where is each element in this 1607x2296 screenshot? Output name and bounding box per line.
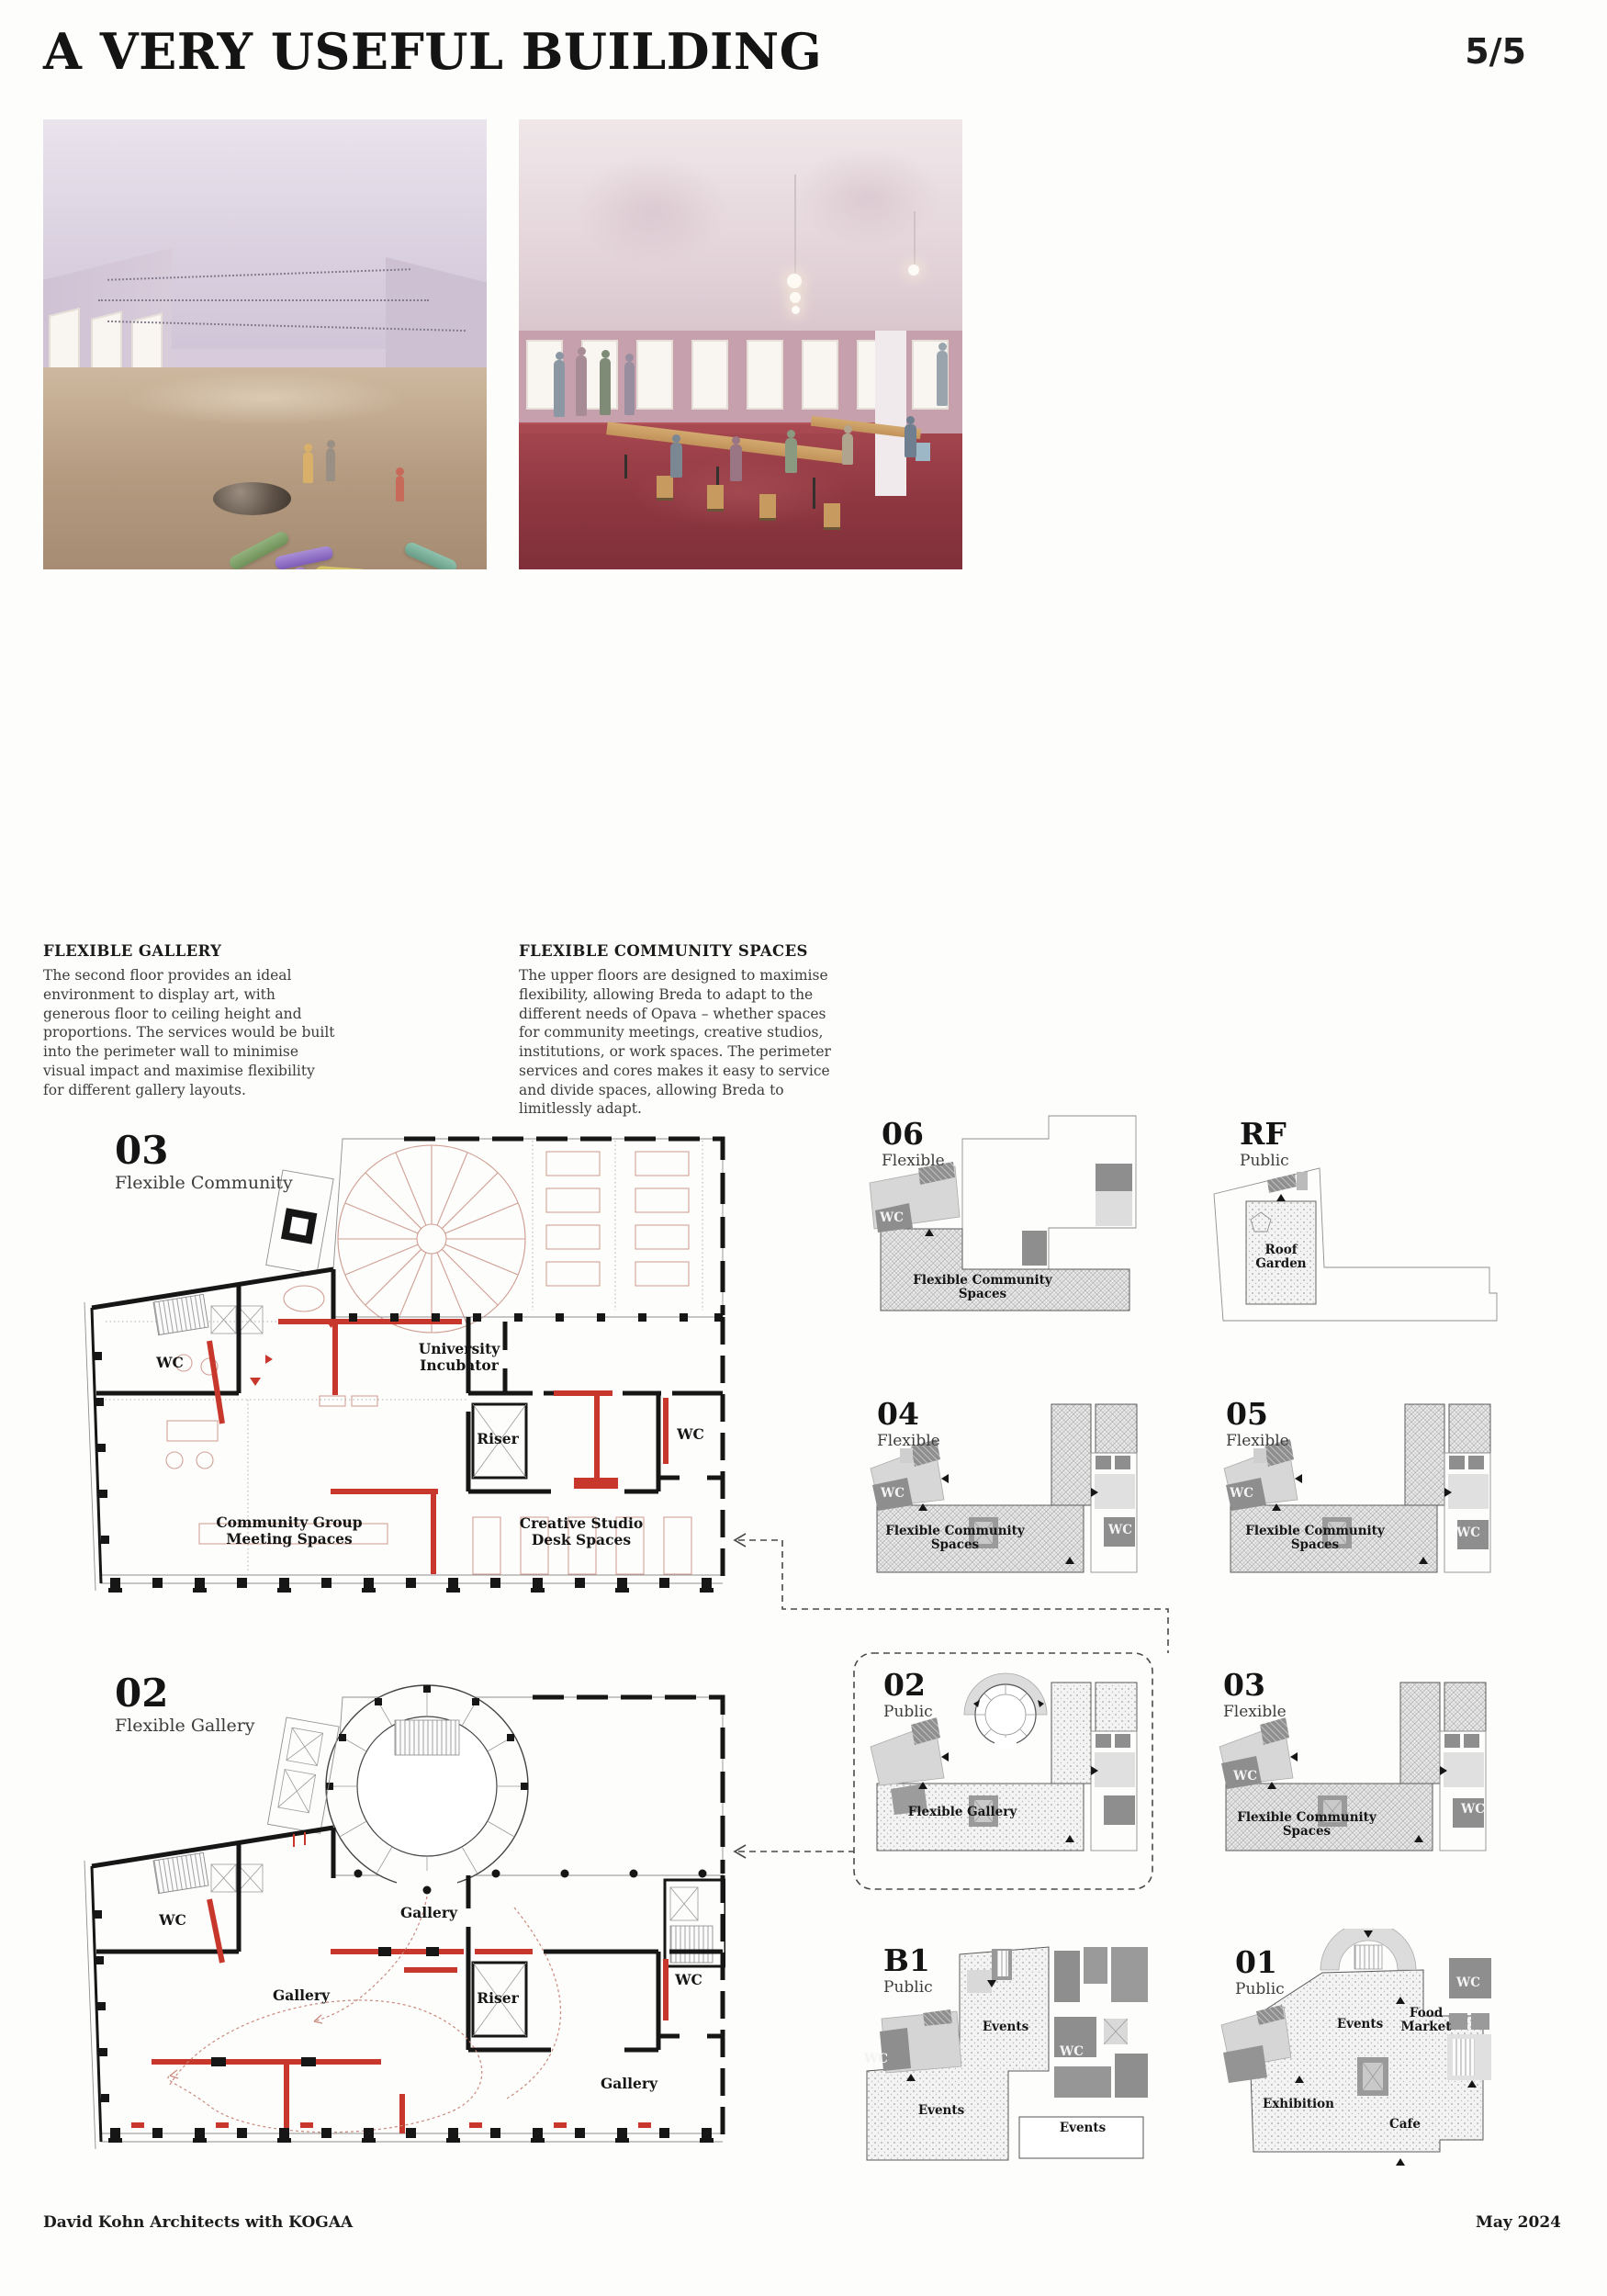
- floor-plan-06-small: 06 Flexible WC Flexible Community Spaces: [863, 1111, 1148, 1322]
- plan-number: B1: [883, 1945, 933, 1975]
- room-label-gallery: Gallery: [583, 2076, 675, 2092]
- person-figure: [554, 360, 565, 417]
- render-flexible-gallery: [43, 119, 487, 569]
- stair: [153, 1294, 208, 1334]
- stair: [153, 1852, 208, 1893]
- plan-name: Public: [883, 1703, 933, 1721]
- room-label-area: Flexible Community Spaces: [868, 1525, 1042, 1552]
- room-label-wc: WC: [858, 2053, 894, 2066]
- floor-plan-03-large: 03 Flexible Community: [73, 1131, 725, 1609]
- floor-plan-rf-small: RF Public Roof Garden: [1212, 1111, 1506, 1327]
- floor-plan-05-small: 05 Flexible WC WC Flexible Community Spa…: [1212, 1391, 1506, 1584]
- floor-plan-02-large: 02 Flexible Gallery: [73, 1667, 725, 2167]
- room-label-area: Flexible Gallery: [889, 1806, 1036, 1819]
- plan-name: Flexible: [882, 1152, 945, 1170]
- visitor-path: [168, 1896, 561, 2133]
- plan-name: Flexible Community: [115, 1173, 293, 1193]
- plan-number: 05: [1226, 1399, 1289, 1429]
- room-label-studio: Creative Studio Desk Spaces: [512, 1515, 650, 1548]
- render-flexible-community: [519, 119, 962, 569]
- room-label-wc: WC: [661, 1972, 716, 1988]
- floor-plan-b1-small: B1 Public Events Events Events WC: [854, 1929, 1152, 2177]
- plan-name: Flexible: [877, 1432, 940, 1450]
- room-label-wc: WC: [145, 1912, 200, 1929]
- plan-number: 01: [1235, 1947, 1285, 1977]
- room-label-wc: WC: [1450, 1803, 1496, 1817]
- room-label-wc: WC: [133, 1355, 207, 1371]
- room-label-area: Roof Garden: [1247, 1244, 1315, 1271]
- plan-name: Public: [1235, 1980, 1285, 1998]
- room-label-wc: WC: [1222, 1770, 1268, 1784]
- room-label-exhibition: Exhibition: [1253, 2098, 1344, 2111]
- caption-heading: FLEXIBLE GALLERY: [43, 942, 357, 960]
- plan-number: 02: [115, 1674, 255, 1713]
- caption-body: The second floor provides an ideal envir…: [43, 966, 335, 1099]
- movable-partitions: [152, 1899, 666, 2133]
- room-label-cafe: Cafe: [1377, 2118, 1433, 2132]
- plan-name: Flexible: [1226, 1432, 1289, 1450]
- room-label-events: Events: [960, 2020, 1051, 2034]
- page-title: A VERY USEFUL BUILDING: [43, 22, 822, 81]
- plan-name: Public: [1240, 1152, 1289, 1170]
- white-pillar: [875, 331, 906, 496]
- room-label-wc: WC: [1445, 1526, 1491, 1540]
- room-label-wc: WC: [869, 1211, 915, 1225]
- rotunda: [326, 1685, 528, 1893]
- presentation-board: A VERY USEFUL BUILDING 5/5: [0, 0, 1607, 2296]
- service-rooms: [1054, 1947, 1148, 2098]
- caption-flexible-community: FLEXIBLE COMMUNITY SPACES The upper floo…: [519, 942, 833, 1119]
- fan-skylight: [338, 1145, 525, 1333]
- room-label-gallery: Gallery: [255, 1987, 347, 2004]
- caption-heading: FLEXIBLE COMMUNITY SPACES: [519, 942, 833, 960]
- floor-connector-lines: [716, 1506, 1194, 1910]
- room-label-food-market: Food Market: [1397, 2007, 1455, 2034]
- room-label-meeting: Community Group Meeting Spaces: [211, 1514, 367, 1548]
- visitor-figure: [303, 452, 313, 483]
- plan-number: 04: [877, 1399, 940, 1429]
- room-label-gallery: Gallery: [383, 1905, 475, 1921]
- footer-credit: David Kohn Architects with KOGAA: [43, 2213, 353, 2232]
- caption-flexible-gallery: FLEXIBLE GALLERY The second floor provid…: [43, 942, 357, 1099]
- caption-body: The upper floors are designed to maximis…: [519, 966, 833, 1119]
- room-label-wc: WC: [663, 1426, 718, 1443]
- room-label-riser: Riser: [470, 1431, 525, 1447]
- room-label-wc: WC: [870, 1487, 916, 1501]
- room-label-riser: Riser: [466, 1990, 530, 2007]
- room-label-wc: WC: [1049, 2045, 1095, 2059]
- room-label-incubator: University Incubator: [399, 1341, 519, 1374]
- room-label-wc: WC: [1097, 1524, 1143, 1537]
- sculpture-blob: [213, 482, 291, 515]
- room-label-area: Flexible Community Spaces: [905, 1274, 1061, 1301]
- room-label-wc: WC: [1445, 1976, 1491, 1990]
- floor-plan-03-small: 03 Flexible WC WC Flexible Community Spa…: [1212, 1653, 1506, 1892]
- floor-plan-01-small: 01 Public WC Events Food Market Exhibiti…: [1212, 1929, 1515, 2177]
- plan-number: 03: [115, 1131, 293, 1170]
- page-number: 5/5: [1465, 31, 1526, 72]
- plan-number: 06: [882, 1119, 945, 1149]
- footer-date: May 2024: [1476, 2213, 1561, 2232]
- room-label-area: Flexible Community Spaces: [1215, 1811, 1399, 1839]
- plan-number: 03: [1223, 1670, 1287, 1700]
- plan-name: Public: [883, 1978, 933, 1997]
- plan-name: Flexible: [1223, 1703, 1287, 1721]
- room-label-events: Events: [1319, 2018, 1401, 2032]
- plan-number: RF: [1240, 1119, 1289, 1149]
- room-label-area: Flexible Community Spaces: [1228, 1525, 1402, 1552]
- room-label-events: Events: [895, 2104, 987, 2118]
- pendant-cord: [794, 174, 796, 276]
- room-label-wc: WC: [1219, 1487, 1264, 1501]
- room-label-events: Events: [1041, 2122, 1124, 2135]
- plan-name: Flexible Gallery: [115, 1716, 255, 1736]
- plan-number: 02: [883, 1670, 933, 1700]
